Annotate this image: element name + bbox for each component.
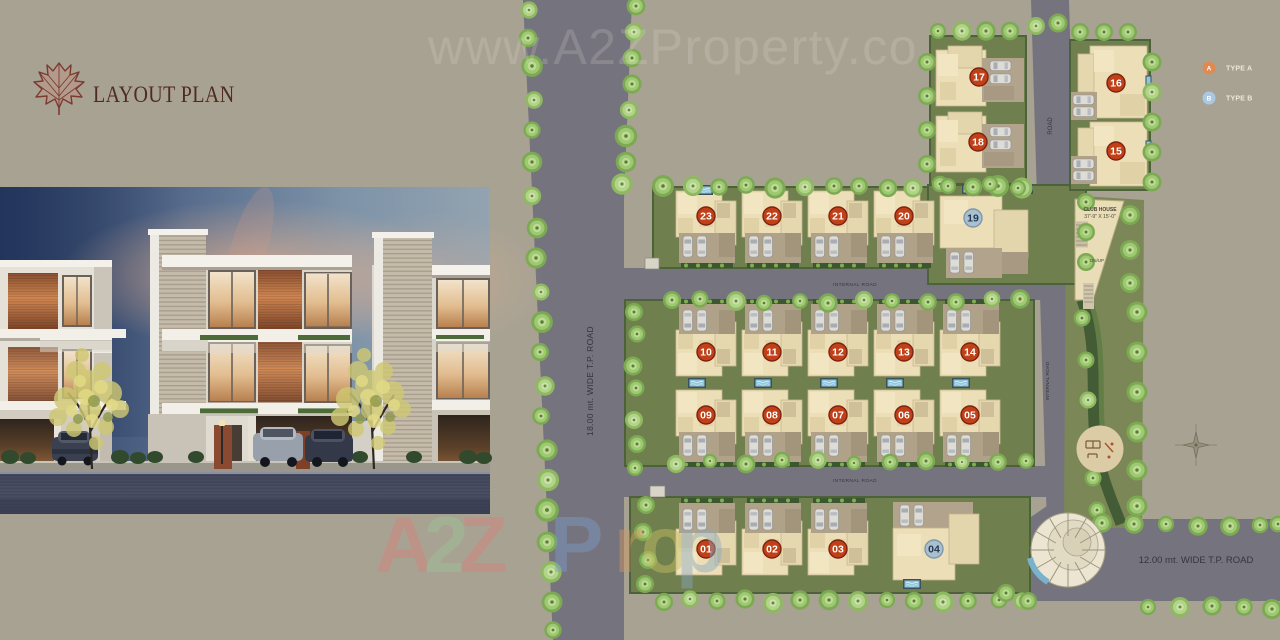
svg-text:11: 11 (766, 346, 777, 358)
svg-text:23: 23 (700, 210, 712, 222)
svg-text:CLUB HOUSE: CLUB HOUSE (1083, 207, 1117, 213)
svg-text:TYPE B: TYPE B (1226, 96, 1252, 103)
svg-text:20: 20 (898, 210, 910, 222)
svg-text:15: 15 (1110, 145, 1122, 157)
svg-text:18.00 mt. WIDE T.P. ROAD: 18.00 mt. WIDE T.P. ROAD (585, 326, 595, 436)
svg-text:07: 07 (832, 409, 844, 421)
svg-text:06: 06 (898, 409, 910, 421)
svg-text:09: 09 (700, 409, 712, 421)
svg-text:05: 05 (964, 409, 976, 421)
svg-text:17: 17 (973, 71, 985, 83)
svg-text:B: B (1207, 96, 1212, 103)
svg-text:P: P (550, 500, 603, 589)
svg-text:TYPE A: TYPE A (1226, 66, 1252, 73)
svg-text:p: p (676, 500, 725, 589)
svg-text:13: 13 (898, 346, 910, 358)
svg-text:12.00 mt. WIDE T.P. ROAD: 12.00 mt. WIDE T.P. ROAD (1139, 555, 1254, 566)
svg-text:21: 21 (832, 210, 844, 222)
svg-text:18: 18 (972, 136, 984, 148)
svg-text:LAYOUT PLAN: LAYOUT PLAN (93, 82, 235, 108)
svg-text:37'-9" X 15'-0": 37'-9" X 15'-0" (1084, 214, 1116, 220)
svg-text:INTERNAL ROAD: INTERNAL ROAD (1045, 361, 1051, 400)
svg-text:www.A2ZProperty.co: www.A2ZProperty.co (427, 19, 918, 75)
svg-text:02: 02 (766, 543, 778, 555)
svg-text:19: 19 (967, 212, 979, 224)
svg-text:INTERNAL ROAD: INTERNAL ROAD (833, 282, 877, 288)
svg-text:08: 08 (766, 409, 778, 421)
svg-text:INTERNAL ROAD: INTERNAL ROAD (833, 478, 877, 484)
svg-text:04: 04 (928, 543, 940, 555)
svg-text:03: 03 (832, 543, 844, 555)
svg-text:12: 12 (832, 346, 844, 358)
svg-text:A: A (1207, 66, 1212, 73)
svg-text:Z: Z (459, 500, 508, 589)
svg-text:ROAD: ROAD (1048, 117, 1054, 135)
svg-text:14: 14 (964, 346, 976, 358)
svg-text:DN/UP: DN/UP (1090, 258, 1104, 263)
svg-text:10: 10 (700, 346, 712, 358)
svg-text:22: 22 (766, 210, 778, 222)
svg-text:16: 16 (1110, 77, 1122, 89)
